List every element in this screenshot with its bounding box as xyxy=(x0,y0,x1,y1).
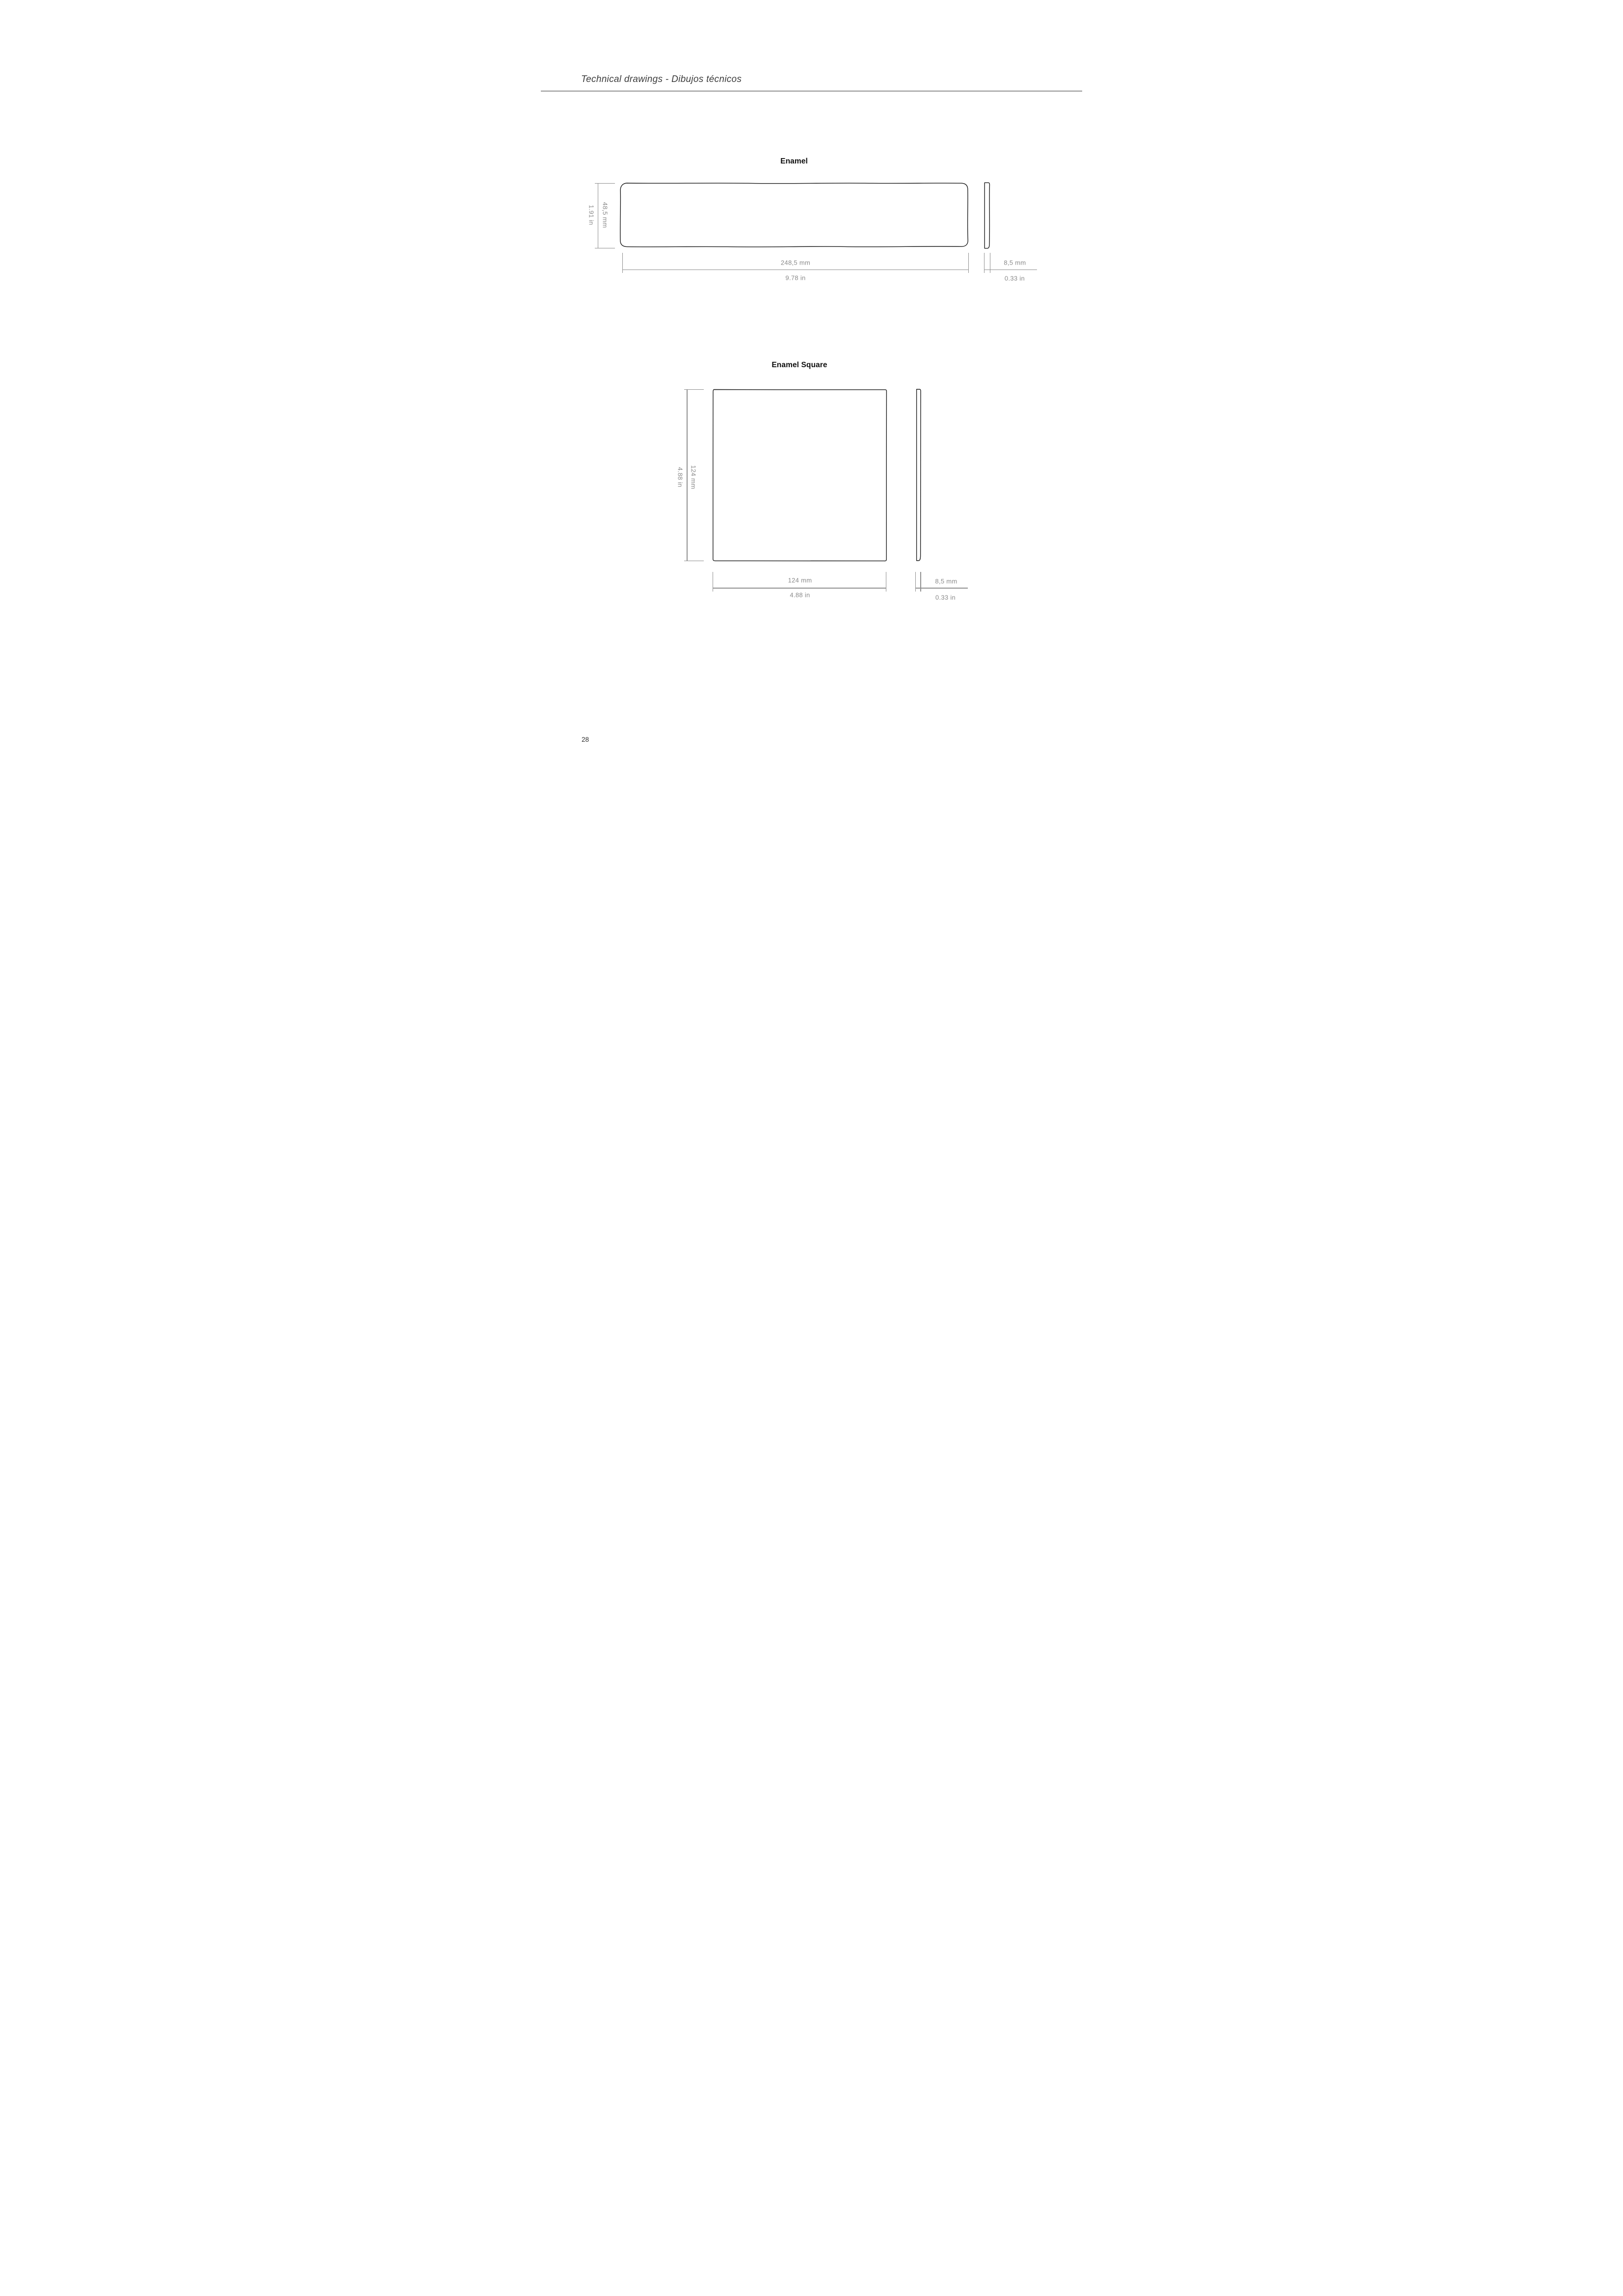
enamel-square-width-dimension-tick-right xyxy=(886,572,886,592)
enamel-width-dimension-tick-left xyxy=(622,253,623,273)
enamel-square-height-dimension-cap-bottom xyxy=(684,561,704,561)
enamel-height-dimension-cap-top xyxy=(595,183,615,184)
enamel-square-thickness-mm-label: 8,5 mm xyxy=(935,578,957,585)
enamel-square-height-dimension-cap-top xyxy=(684,389,704,390)
enamel-square-thickness-in-label: 0.33 in xyxy=(935,594,956,601)
enamel-square-thickness-dimension-tick-left xyxy=(915,572,916,592)
enamel-thickness-dimension-tick-right xyxy=(990,253,990,273)
enamel-thickness-in-label: 0.33 in xyxy=(1005,274,1025,282)
enamel-height-in-label: 1.91 in xyxy=(588,205,595,225)
enamel-square-width-in-label: 4.88 in xyxy=(790,591,810,598)
enamel-square-height-in-label: 4.88 in xyxy=(677,467,684,487)
enamel-square-height-dimension-line xyxy=(687,389,687,561)
enamel-square-side-view-outline xyxy=(916,389,921,561)
enamel-square-width-dimension-line xyxy=(713,588,886,588)
drawing-title-enamel: Enamel xyxy=(730,157,858,166)
enamel-height-dimension-cap-bottom xyxy=(595,248,615,248)
enamel-width-in-label: 9.78 in xyxy=(785,274,805,281)
page-number: 28 xyxy=(582,736,589,743)
enamel-height-mm-label: 48,5 mm xyxy=(601,202,609,228)
enamel-height-dimension-line xyxy=(598,183,598,248)
page-title: Technical drawings - Dibujos técnicos xyxy=(581,74,742,85)
enamel-width-dimension-tick-right xyxy=(968,253,969,273)
enamel-thickness-dimension-line xyxy=(984,270,1037,270)
enamel-side-view-outline xyxy=(984,182,990,249)
enamel-thickness-mm-label: 8,5 mm xyxy=(1004,259,1026,267)
enamel-square-front-view-outline xyxy=(712,389,887,562)
header-rule xyxy=(541,91,1082,91)
enamel-square-thickness-dimension-tick-right xyxy=(920,572,921,592)
enamel-square-width-mm-label: 124 mm xyxy=(788,577,812,584)
enamel-width-dimension-line xyxy=(623,270,969,270)
drawing-title-enamel-square: Enamel Square xyxy=(736,361,863,370)
enamel-thickness-dimension-tick-left xyxy=(984,253,984,273)
enamel-width-mm-label: 248,5 mm xyxy=(781,259,810,267)
enamel-square-thickness-dimension-line xyxy=(916,588,968,588)
enamel-square-height-mm-label: 124 mm xyxy=(690,465,697,489)
catalog-page: Technical drawings - Dibujos técnicos En… xyxy=(541,0,1082,765)
enamel-front-view-outline xyxy=(619,182,969,248)
enamel-square-width-dimension-tick-left xyxy=(713,572,713,592)
